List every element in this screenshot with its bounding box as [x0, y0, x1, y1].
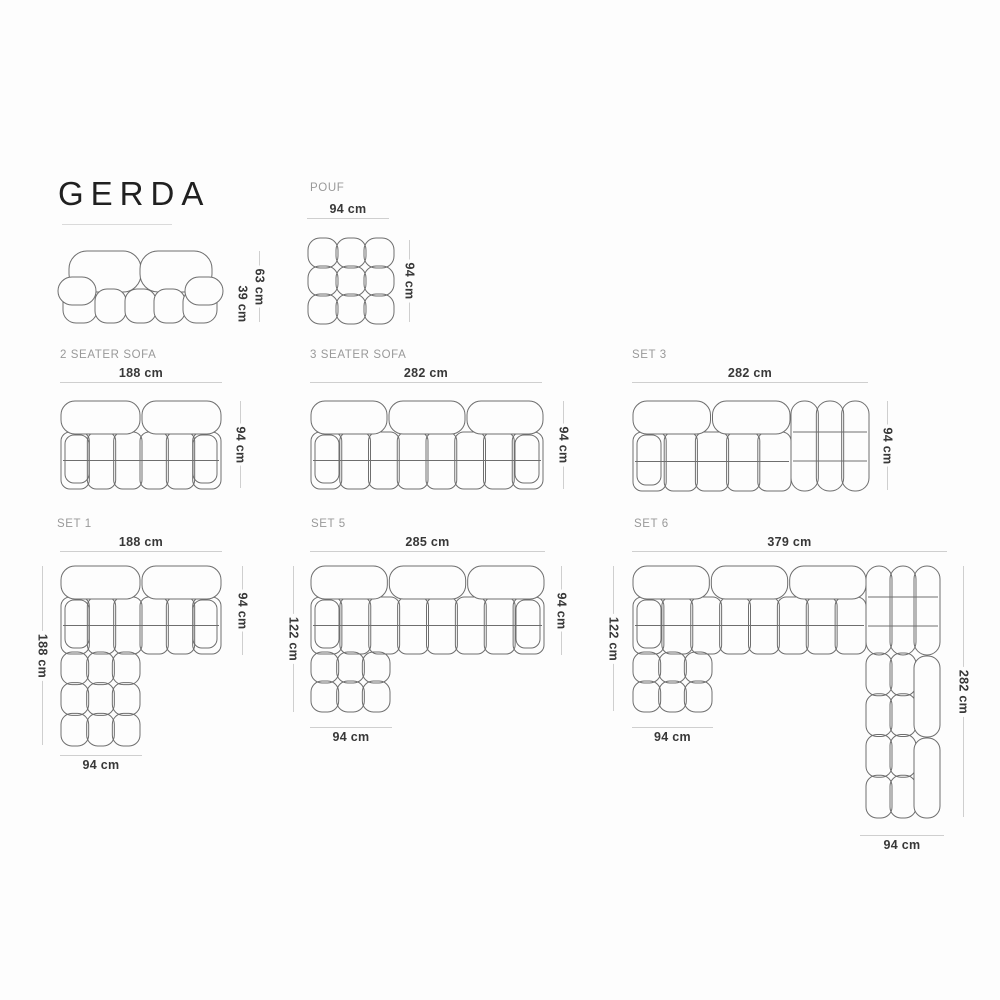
dimension-label: 122 cm [606, 613, 622, 663]
three-seater-width-dimension: 282 cm [310, 365, 542, 383]
set1-depth-dimension: 94 cm [234, 566, 251, 655]
dimension-label: 94 cm [884, 838, 921, 852]
set6-label: SET 6 [634, 518, 669, 530]
dimension-label: 122 cm [286, 614, 302, 664]
set6-chaise-width-dimension: 94 cm [632, 727, 713, 746]
three-seater-label: 3 SEATER SOFA [310, 349, 406, 361]
set3-depth-dimension: 94 cm [879, 401, 896, 490]
three-seater-top-view-drawing [310, 400, 544, 490]
set3-width-dimension: 282 cm [632, 365, 868, 383]
set5-width-dimension: 285 cm [310, 534, 545, 552]
sofa-front-view-drawing [57, 249, 224, 326]
dimension-label: 94 cm [233, 423, 249, 466]
product-title: GERDA [58, 176, 210, 212]
dimension-label: 188 cm [119, 535, 163, 549]
set6-right-depth-dimension: 282 cm [955, 566, 972, 817]
set6-right-width-dimension: 94 cm [860, 835, 944, 854]
dimension-label: 94 cm [330, 202, 367, 216]
set1-label: SET 1 [57, 518, 92, 530]
set6-left-depth-dimension: 122 cm [605, 566, 622, 711]
dimension-label: 94 cm [402, 260, 418, 303]
two-seater-width-dimension: 188 cm [60, 365, 222, 383]
gerda-dimension-diagram: GERDA POUF 94 cm 94 cm 63 cm 39 cm 2 SEA… [0, 0, 1000, 1000]
pouf-width-dimension: 94 cm [307, 201, 389, 219]
dimension-label: 94 cm [333, 730, 370, 744]
dimension-label: 63 cm [252, 265, 268, 308]
dimension-label: 94 cm [554, 589, 570, 632]
pouf-top-view-drawing [307, 237, 395, 325]
dimension-label: 188 cm [119, 366, 163, 380]
pouf-label: POUF [310, 182, 344, 194]
set5-total-depth-dimension: 122 cm [285, 566, 302, 712]
dimension-label: 379 cm [767, 535, 811, 549]
two-seater-depth-dimension: 94 cm [232, 401, 249, 488]
dimension-label: 282 cm [728, 366, 772, 380]
dimension-label: 285 cm [405, 535, 449, 549]
dimension-label: 94 cm [556, 424, 572, 467]
sofa-total-height-dimension: 63 cm [251, 251, 268, 322]
dimension-label: 94 cm [235, 589, 251, 632]
set5-depth-dimension: 94 cm [553, 566, 570, 655]
set1-chaise-width-dimension: 94 cm [60, 755, 142, 774]
set1-top-view-drawing [60, 565, 222, 747]
title-underline [62, 224, 172, 225]
set1-width-dimension: 188 cm [60, 534, 222, 552]
dimension-label: 94 cm [654, 730, 691, 744]
dimension-label: 94 cm [880, 424, 896, 467]
three-seater-depth-dimension: 94 cm [555, 401, 572, 489]
dimension-label: 282 cm [404, 366, 448, 380]
set5-top-view-drawing [310, 565, 545, 713]
set3-top-view-drawing [632, 400, 870, 492]
set3-label: SET 3 [632, 349, 667, 361]
pouf-depth-dimension: 94 cm [401, 240, 418, 322]
set5-label: SET 5 [311, 518, 346, 530]
set6-top-view-drawing [632, 565, 942, 819]
dimension-label: 282 cm [956, 666, 972, 716]
set6-width-dimension: 379 cm [632, 534, 947, 552]
two-seater-label: 2 SEATER SOFA [60, 349, 156, 361]
sofa-seat-height-dimension: 39 cm [234, 285, 251, 322]
set5-chaise-width-dimension: 94 cm [310, 727, 392, 746]
dimension-label: 188 cm [35, 630, 51, 680]
dimension-label: 39 cm [235, 282, 251, 325]
dimension-label: 94 cm [83, 758, 120, 772]
two-seater-top-view-drawing [60, 400, 222, 490]
set1-total-depth-dimension: 188 cm [34, 566, 51, 745]
